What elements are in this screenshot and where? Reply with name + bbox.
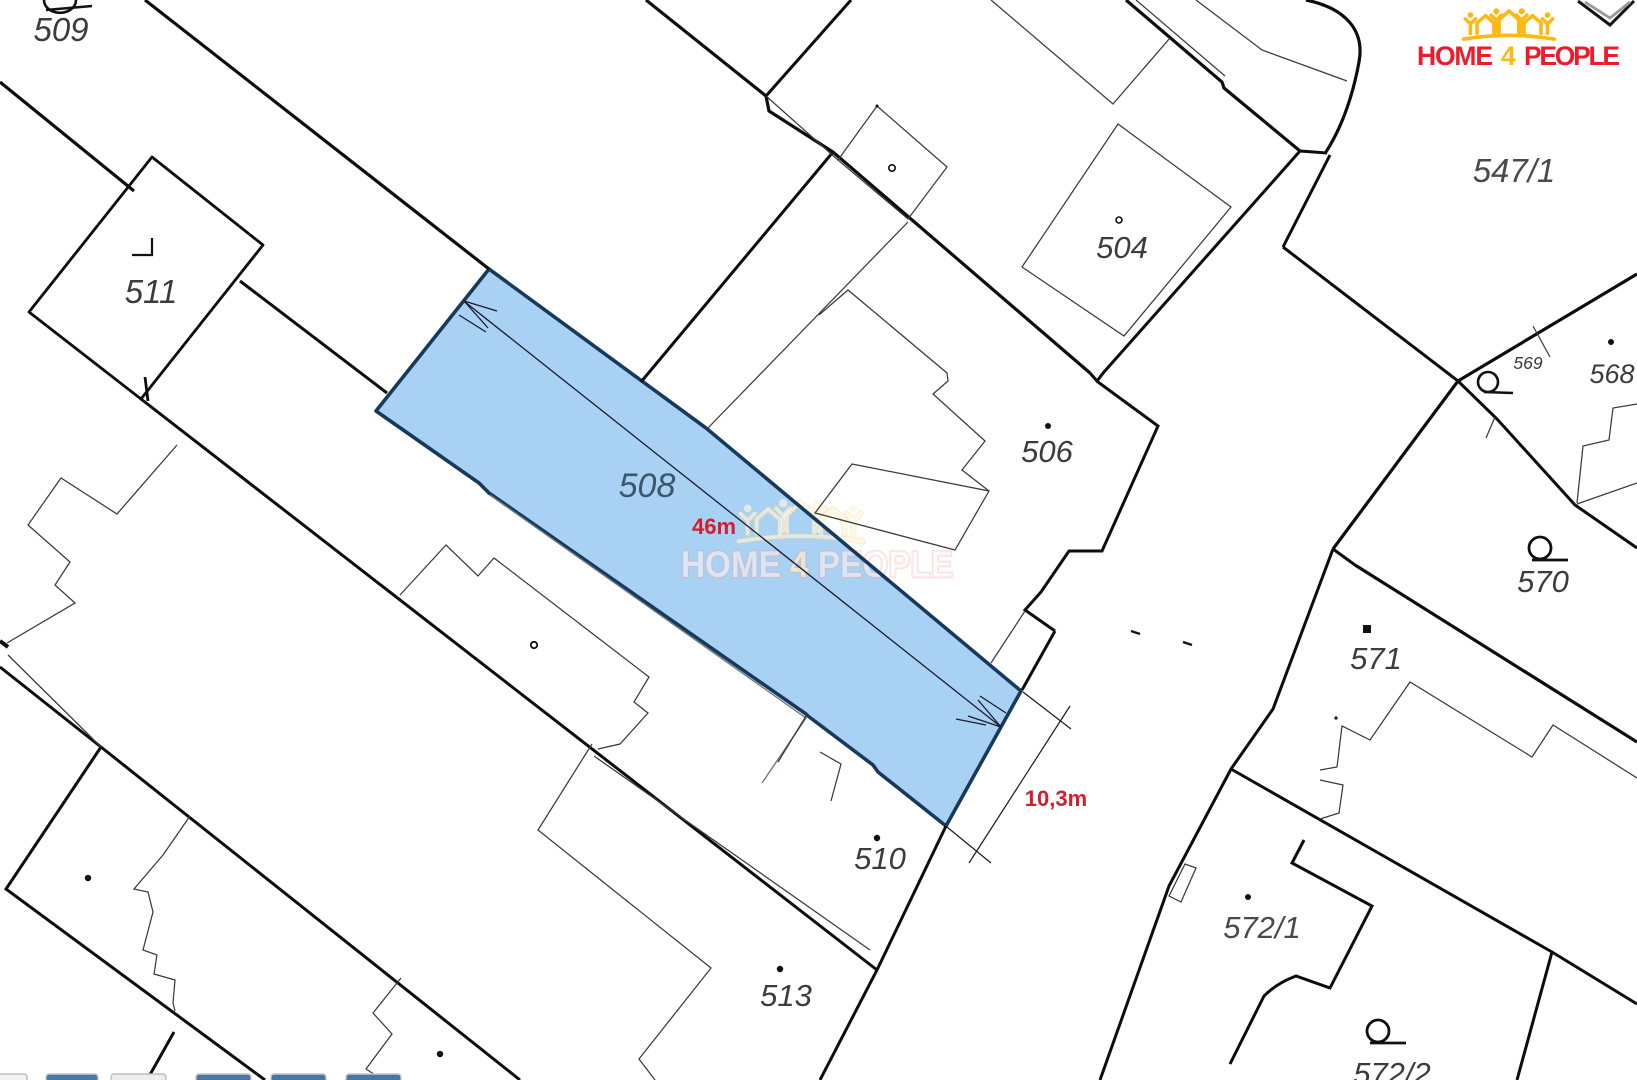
svg-text:509: 509 <box>33 11 88 48</box>
svg-text:HOME: HOME <box>1417 41 1493 71</box>
svg-text:10,3m: 10,3m <box>1025 786 1087 811</box>
svg-text:511: 511 <box>125 273 178 310</box>
svg-text:506: 506 <box>1021 434 1073 469</box>
svg-text:572/2: 572/2 <box>1353 1056 1431 1080</box>
svg-text:PEOPLE: PEOPLE <box>1524 41 1620 71</box>
svg-text:571: 571 <box>1350 641 1402 676</box>
svg-text:HOME 4 PEOPLE: HOME 4 PEOPLE <box>681 544 953 585</box>
svg-text:547/1: 547/1 <box>1473 152 1556 189</box>
svg-text:510: 510 <box>854 841 906 876</box>
svg-text:513: 513 <box>760 978 812 1013</box>
svg-text:508: 508 <box>619 467 676 505</box>
svg-text:570: 570 <box>1517 564 1569 599</box>
svg-text:504: 504 <box>1096 230 1148 265</box>
svg-text:569: 569 <box>1513 353 1542 373</box>
svg-text:4: 4 <box>1501 41 1516 71</box>
svg-text:572/1: 572/1 <box>1223 910 1301 945</box>
svg-text:568: 568 <box>1589 359 1634 389</box>
svg-text:46m: 46m <box>692 514 736 539</box>
